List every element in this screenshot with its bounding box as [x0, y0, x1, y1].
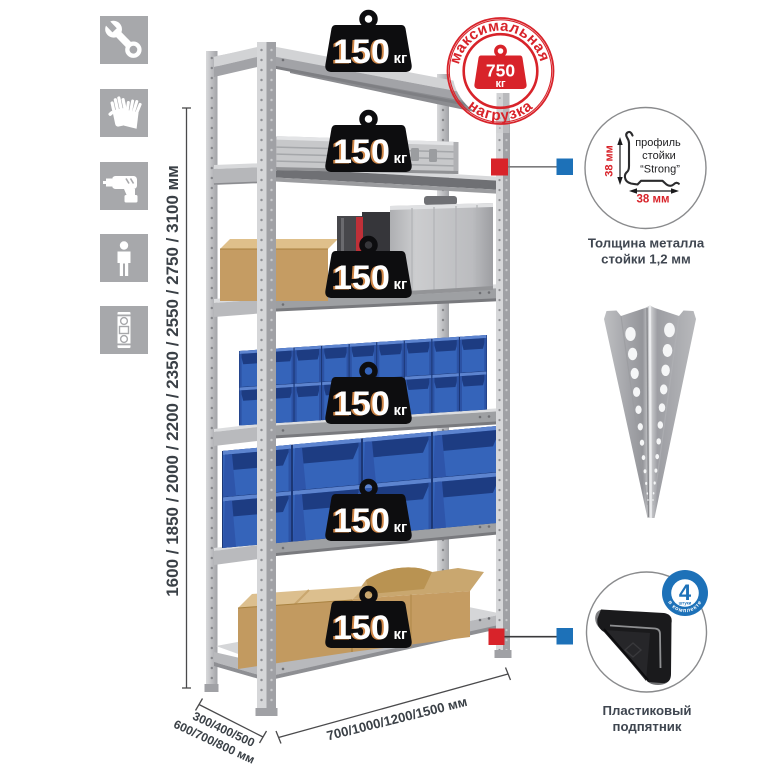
svg-text:кг: кг — [394, 150, 408, 167]
svg-text:кг: кг — [394, 402, 408, 419]
svg-text:150: 150 — [333, 609, 390, 647]
svg-text:кг: кг — [394, 626, 408, 643]
svg-text:38 мм: 38 мм — [604, 145, 616, 177]
svg-text:150: 150 — [333, 502, 390, 540]
svg-text:стойки: стойки — [642, 150, 676, 162]
svg-text:38 мм: 38 мм — [636, 194, 669, 206]
svg-text:подпятник: подпятник — [612, 719, 681, 734]
svg-text:кг: кг — [495, 78, 506, 90]
svg-text:150: 150 — [333, 133, 390, 171]
svg-text:1600 / 1850 / 2000 / 2200 / 23: 1600 / 1850 / 2000 / 2200 / 2350 / 2550 … — [163, 165, 182, 597]
svg-text:“Strong”: “Strong” — [640, 164, 680, 176]
svg-text:Пластиковый: Пластиковый — [602, 703, 691, 718]
svg-text:кг: кг — [394, 519, 408, 536]
svg-text:стойки 1,2 мм: стойки 1,2 мм — [601, 252, 691, 267]
svg-text:Толщина металла: Толщина металла — [588, 236, 705, 251]
svg-text:профиль: профиль — [635, 137, 681, 149]
svg-text:150: 150 — [333, 33, 390, 71]
svg-text:150: 150 — [333, 259, 390, 297]
svg-text:кг: кг — [394, 276, 408, 293]
svg-text:кг: кг — [394, 50, 408, 67]
svg-text:150: 150 — [333, 385, 390, 423]
svg-text:штуки: штуки — [679, 601, 692, 606]
